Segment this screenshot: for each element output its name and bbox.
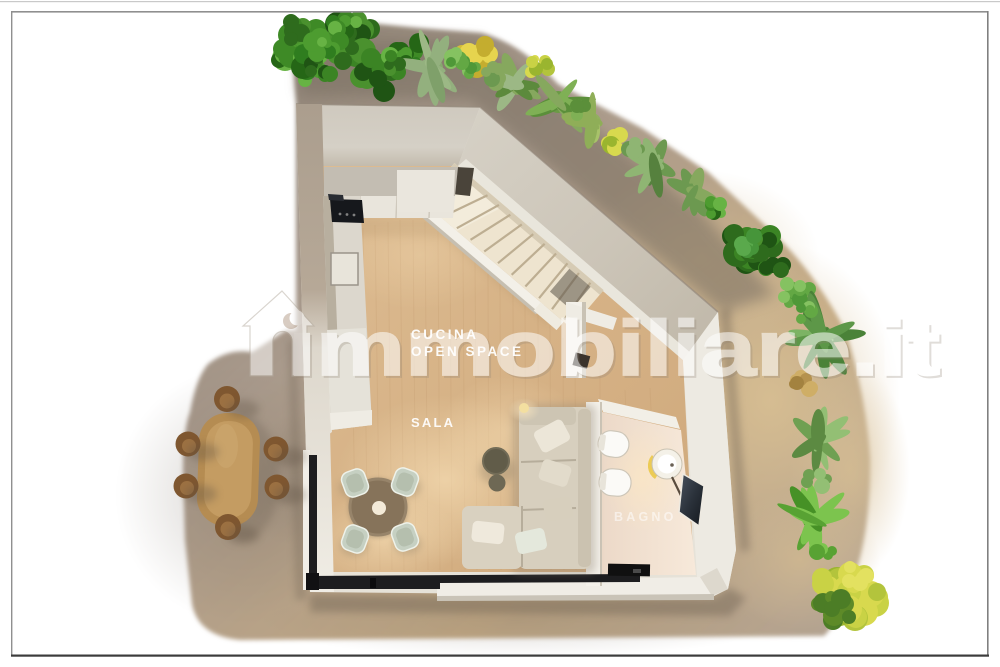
- svg-text:BAGNO: BAGNO: [614, 510, 677, 524]
- svg-text:SALA: SALA: [411, 415, 455, 430]
- svg-text:CUCINA: CUCINA: [411, 327, 479, 342]
- svg-text:OPEN SPACE: OPEN SPACE: [411, 344, 524, 359]
- svg-text:ımmobiliare.it: ımmobiliare.it: [288, 304, 940, 392]
